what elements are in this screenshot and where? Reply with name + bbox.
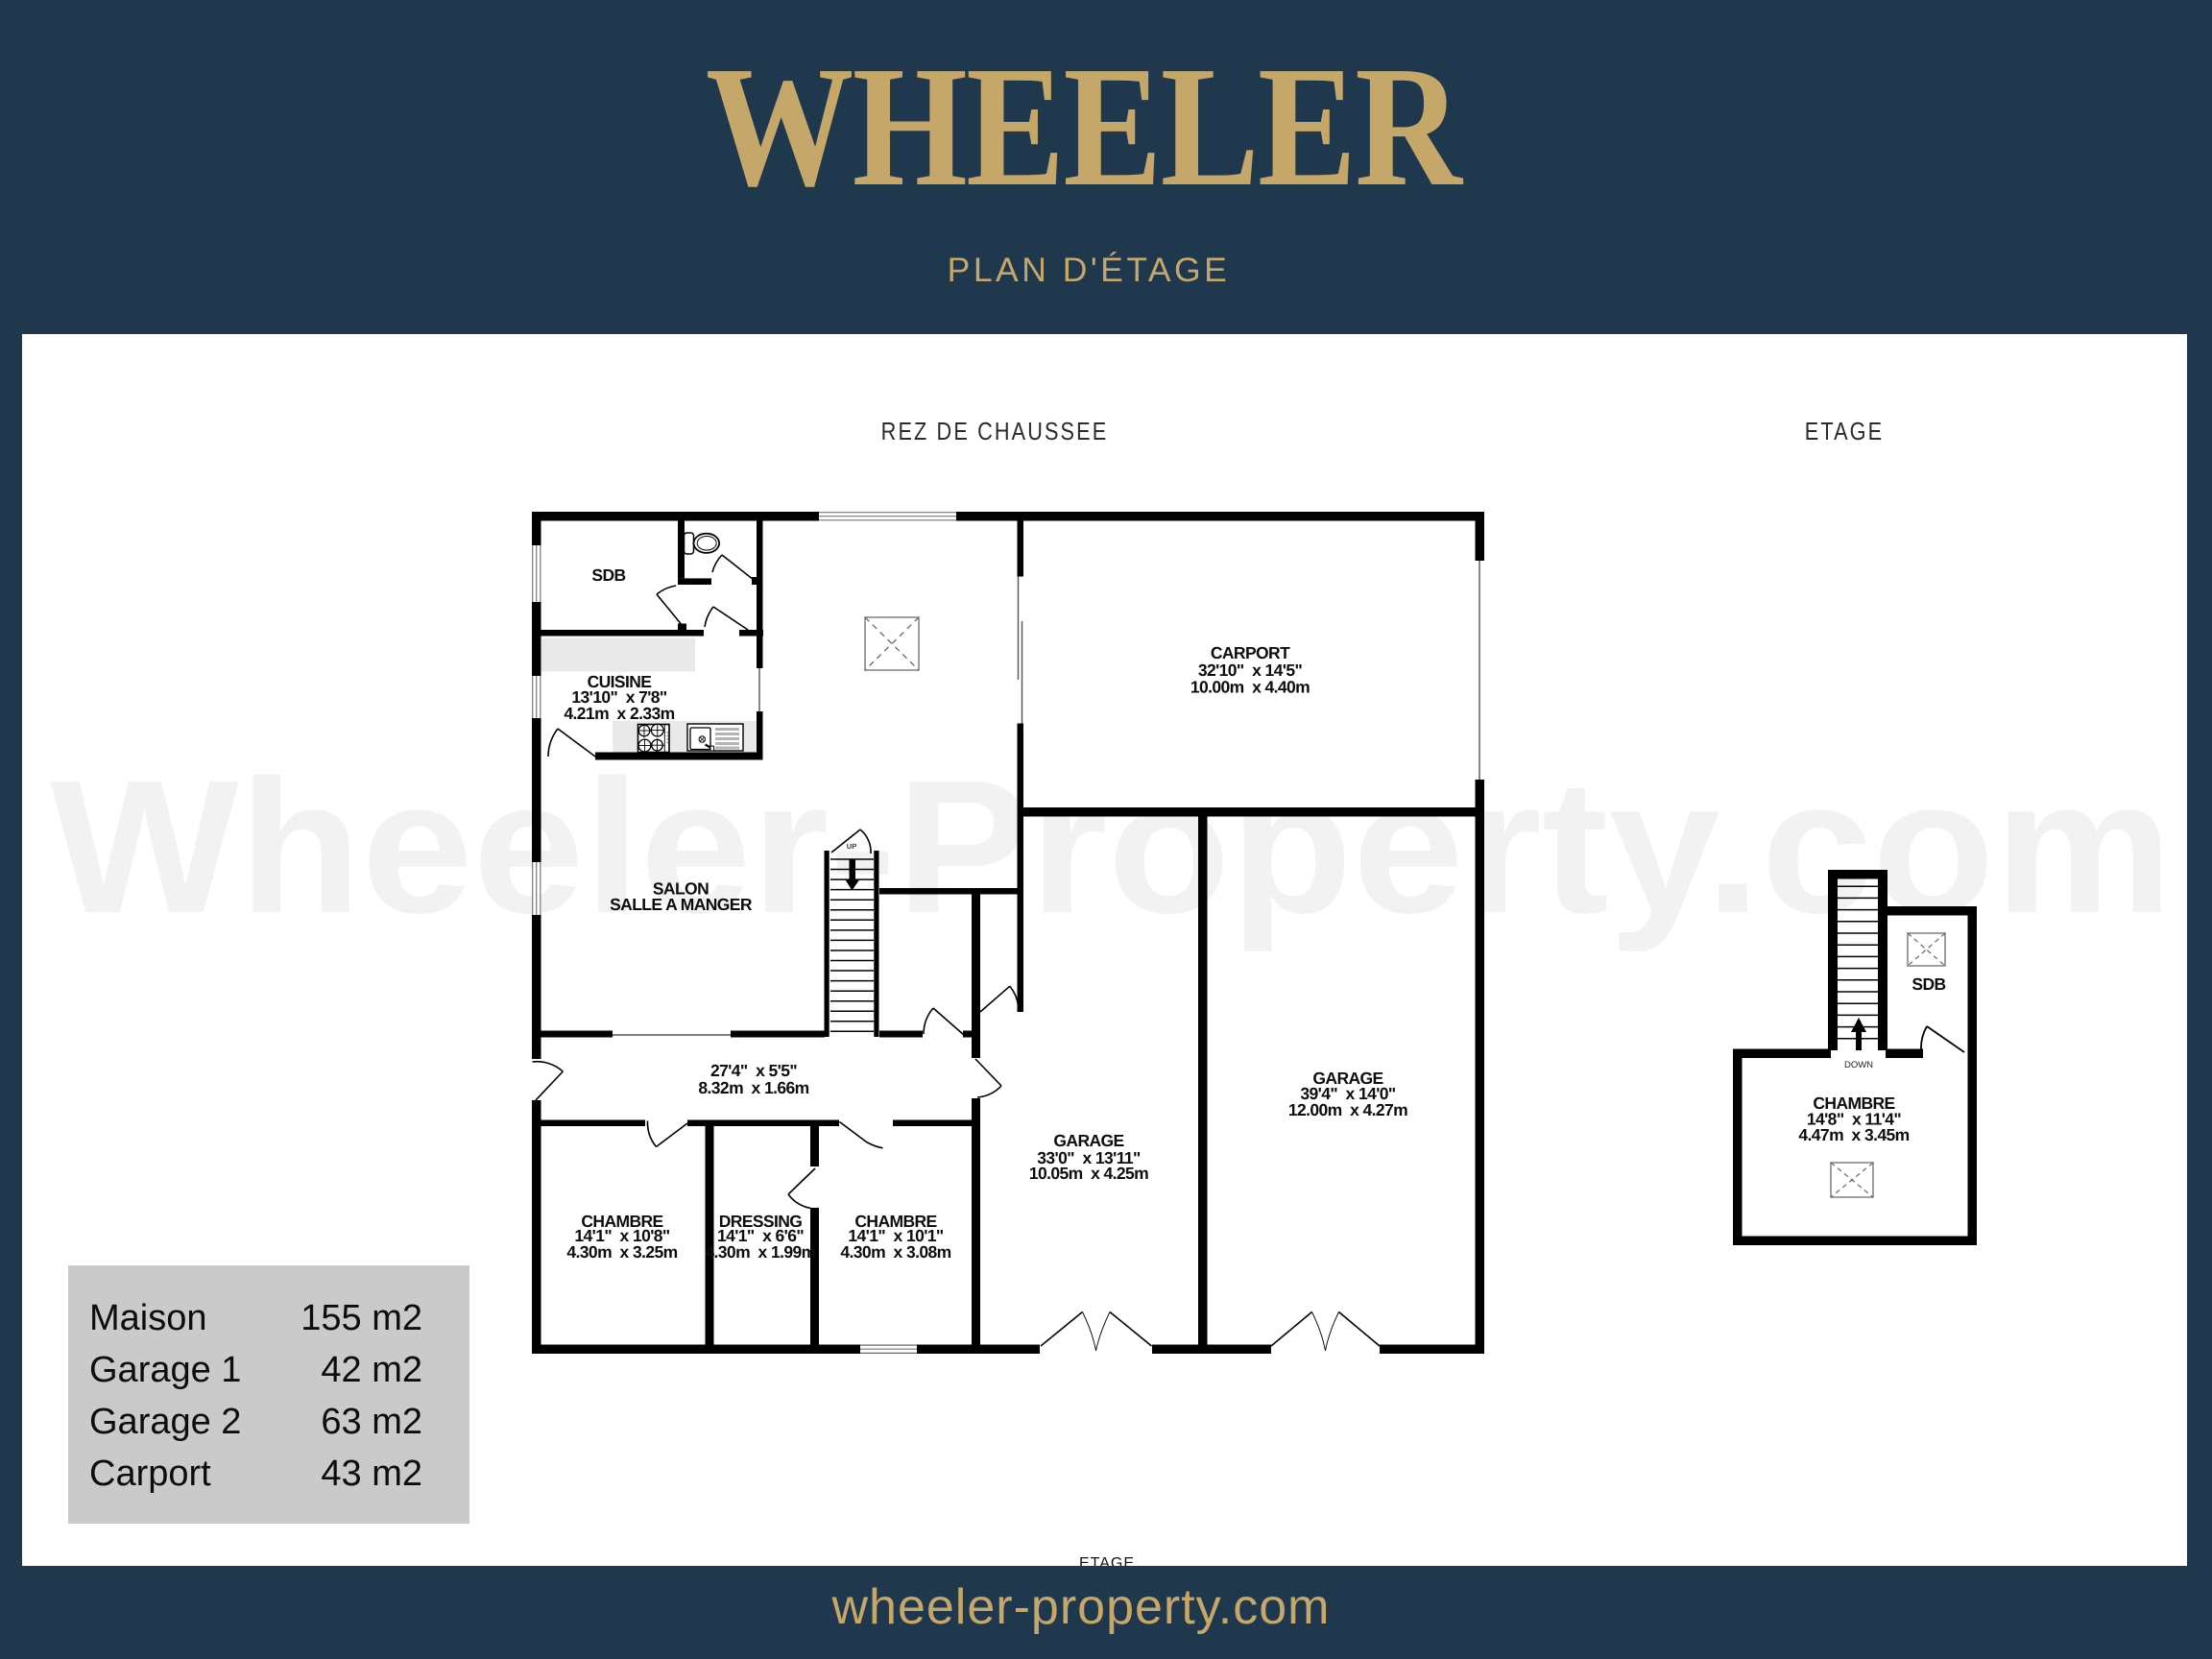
svg-text:4.21m x 2.33m: 4.21m x 2.33m <box>564 704 674 723</box>
svg-text:SDB: SDB <box>591 565 625 585</box>
svg-text:SALLE A MANGER: SALLE A MANGER <box>610 895 753 914</box>
svg-text:12.00m x 4.27m: 12.00m x 4.27m <box>1288 1100 1407 1119</box>
svg-text:CARPORT: CARPORT <box>1211 643 1290 662</box>
svg-text:UP: UP <box>847 842 856 851</box>
svg-text:4.30m x 1.99m: 4.30m x 1.99m <box>705 1242 815 1262</box>
svg-text:4.30m x 3.25m: 4.30m x 3.25m <box>566 1242 677 1262</box>
svg-text:DOWN: DOWN <box>1844 1060 1873 1070</box>
svg-text:10.00m x 4.40m: 10.00m x 4.40m <box>1190 678 1310 697</box>
svg-text:GARAGE: GARAGE <box>1053 1131 1123 1150</box>
svg-text:SDB: SDB <box>1911 974 1945 994</box>
svg-text:4.30m x 3.08m: 4.30m x 3.08m <box>840 1242 950 1262</box>
svg-text:27'4" x 5'5": 27'4" x 5'5" <box>710 1061 797 1080</box>
svg-text:8.32m x 1.66m: 8.32m x 1.66m <box>698 1078 808 1097</box>
svg-text:10.05m x 4.25m: 10.05m x 4.25m <box>1029 1164 1148 1183</box>
svg-text:4.47m x 3.45m: 4.47m x 3.45m <box>1798 1125 1909 1144</box>
